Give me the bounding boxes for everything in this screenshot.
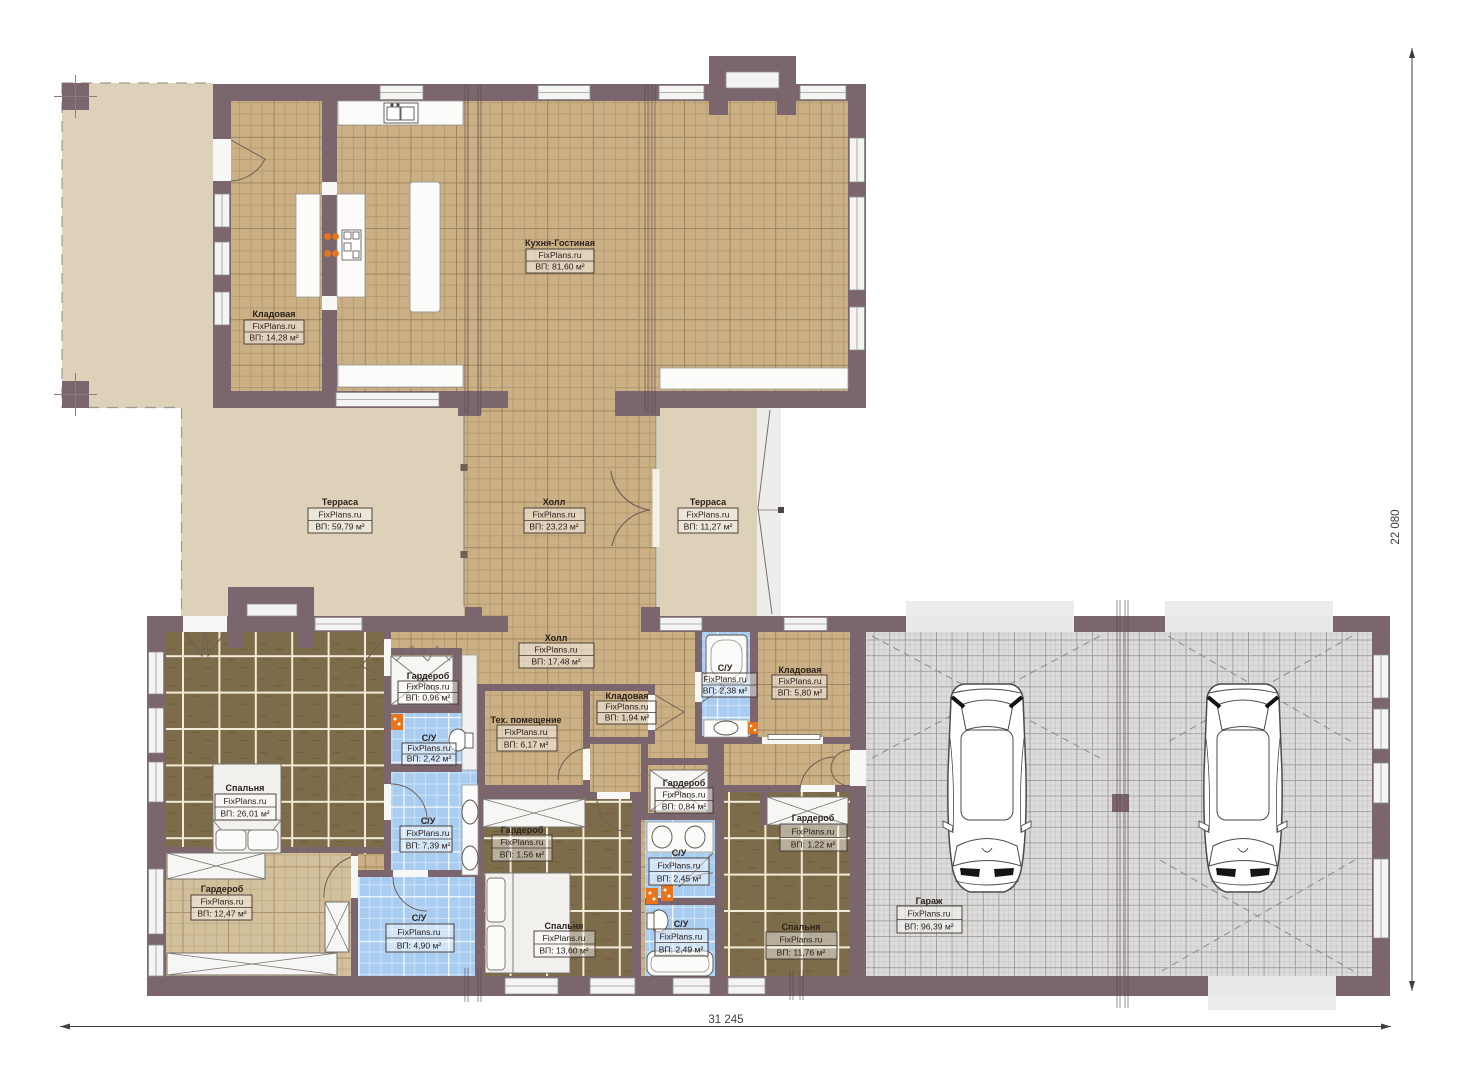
svg-text:FixPlans.ru: FixPlans.ru <box>780 935 823 945</box>
svg-text:Кладовая: Кладовая <box>778 665 821 675</box>
svg-text:22 080: 22 080 <box>1390 509 1402 544</box>
svg-text:FixPlans.ru: FixPlans.ru <box>704 674 747 684</box>
svg-text:FixPlans.ru: FixPlans.ru <box>606 702 649 712</box>
svg-text:31 245: 31 245 <box>708 1014 743 1026</box>
svg-text:ВП: 1,94 м²: ВП: 1,94 м² <box>605 713 650 723</box>
svg-text:ВП: 4,90 м²: ВП: 4,90 м² <box>397 941 442 951</box>
svg-text:FixPlans.ru: FixPlans.ru <box>408 743 451 753</box>
svg-text:FixPlans.ru: FixPlans.ru <box>253 321 296 331</box>
svg-text:С/У: С/У <box>718 663 733 673</box>
svg-text:ВП: 11,76 м²: ВП: 11,76 м² <box>777 948 826 958</box>
svg-text:ВП: 23,23 м²: ВП: 23,23 м² <box>529 522 578 532</box>
svg-text:FixPlans.ru: FixPlans.ru <box>658 861 701 871</box>
svg-text:ВП: 12,47 м²: ВП: 12,47 м² <box>197 909 246 919</box>
svg-text:ВП: 1,56 м²: ВП: 1,56 м² <box>500 850 545 860</box>
svg-text:FixPlans.ru: FixPlans.ru <box>407 828 450 838</box>
svg-text:ВП: 7,39 м²: ВП: 7,39 м² <box>406 841 451 851</box>
svg-text:Гардероб: Гардероб <box>663 778 706 788</box>
svg-text:Терраса: Терраса <box>322 497 359 507</box>
svg-text:FixPlans.ru: FixPlans.ru <box>792 827 835 837</box>
svg-text:Кладовая: Кладовая <box>252 309 295 319</box>
svg-text:Холл: Холл <box>545 633 568 643</box>
svg-text:ВП: 0,84 м²: ВП: 0,84 м² <box>662 802 707 812</box>
svg-text:ВП: 59,79 м²: ВП: 59,79 м² <box>315 522 364 532</box>
svg-text:ВП: 2,42 м²: ВП: 2,42 м² <box>407 754 452 764</box>
svg-text:FixPlans.ru: FixPlans.ru <box>908 909 951 919</box>
svg-text:FixPlans.ru: FixPlans.ru <box>319 510 362 520</box>
svg-text:Спальня: Спальня <box>226 783 265 793</box>
svg-text:Кухня-Гостиная: Кухня-Гостиная <box>525 238 595 248</box>
svg-text:FixPlans.ru: FixPlans.ru <box>201 897 244 907</box>
svg-text:Спальня: Спальня <box>545 921 584 931</box>
svg-text:Спальня: Спальня <box>782 922 821 932</box>
svg-text:ВП: 1,22 м²: ВП: 1,22 м² <box>791 840 836 850</box>
svg-text:С/У: С/У <box>421 816 436 826</box>
svg-text:FixPlans.ru: FixPlans.ru <box>779 676 822 686</box>
svg-text:FixPlans.ru: FixPlans.ru <box>501 837 544 847</box>
svg-text:ВП: 14,28 м²: ВП: 14,28 м² <box>249 333 298 343</box>
svg-text:FixPlans.ru: FixPlans.ru <box>539 250 582 260</box>
svg-text:FixPlans.ru: FixPlans.ru <box>660 932 703 942</box>
svg-text:Холл: Холл <box>543 497 566 507</box>
svg-text:ВП: 2,38 м²: ВП: 2,38 м² <box>703 686 748 696</box>
svg-text:ВП: 5,80 м²: ВП: 5,80 м² <box>778 688 823 698</box>
svg-text:Гараж: Гараж <box>916 896 943 906</box>
svg-text:ВП: 2,45 м²: ВП: 2,45 м² <box>657 874 702 884</box>
svg-text:ВП: 6,17 м²: ВП: 6,17 м² <box>504 740 549 750</box>
svg-text:ВП: 81,60 м²: ВП: 81,60 м² <box>535 262 584 272</box>
svg-text:ВП: 13,60 м²: ВП: 13,60 м² <box>539 946 588 956</box>
svg-text:ВП: 0,96 м²: ВП: 0,96 м² <box>406 693 451 703</box>
svg-text:FixPlans.ru: FixPlans.ru <box>533 510 576 520</box>
svg-text:Гардероб: Гардероб <box>407 671 450 681</box>
svg-text:FixPlans.ru: FixPlans.ru <box>505 727 548 737</box>
svg-text:FixPlans.ru: FixPlans.ru <box>224 796 267 806</box>
svg-text:ВП: 11,27 м²: ВП: 11,27 м² <box>684 522 733 532</box>
svg-text:ВП: 96,39 м²: ВП: 96,39 м² <box>904 922 953 932</box>
svg-text:FixPlans.ru: FixPlans.ru <box>407 682 450 692</box>
svg-text:С/У: С/У <box>422 733 437 743</box>
svg-text:FixPlans.ru: FixPlans.ru <box>543 933 586 943</box>
svg-text:ВП: 17,48 м²: ВП: 17,48 м² <box>531 657 580 667</box>
svg-text:ВП: 2,49 м²: ВП: 2,49 м² <box>659 945 704 955</box>
svg-text:ВП: 26,01 м²: ВП: 26,01 м² <box>220 809 269 819</box>
svg-text:Кладовая: Кладовая <box>605 691 648 701</box>
svg-text:Гардероб: Гардероб <box>501 825 544 835</box>
svg-text:С/У: С/У <box>672 848 687 858</box>
svg-text:FixPlans.ru: FixPlans.ru <box>535 645 578 655</box>
svg-text:Гардероб: Гардероб <box>201 884 244 894</box>
svg-text:С/У: С/У <box>412 913 427 923</box>
svg-text:FixPlans.ru: FixPlans.ru <box>398 927 441 937</box>
svg-text:Терраса: Терраса <box>690 497 727 507</box>
svg-text:FixPlans.ru: FixPlans.ru <box>663 790 706 800</box>
svg-text:FixPlans.ru: FixPlans.ru <box>687 510 730 520</box>
svg-text:Тех. помещение: Тех. помещение <box>491 715 562 725</box>
svg-text:Гардероб: Гардероб <box>792 813 835 823</box>
svg-text:С/У: С/У <box>674 919 689 929</box>
